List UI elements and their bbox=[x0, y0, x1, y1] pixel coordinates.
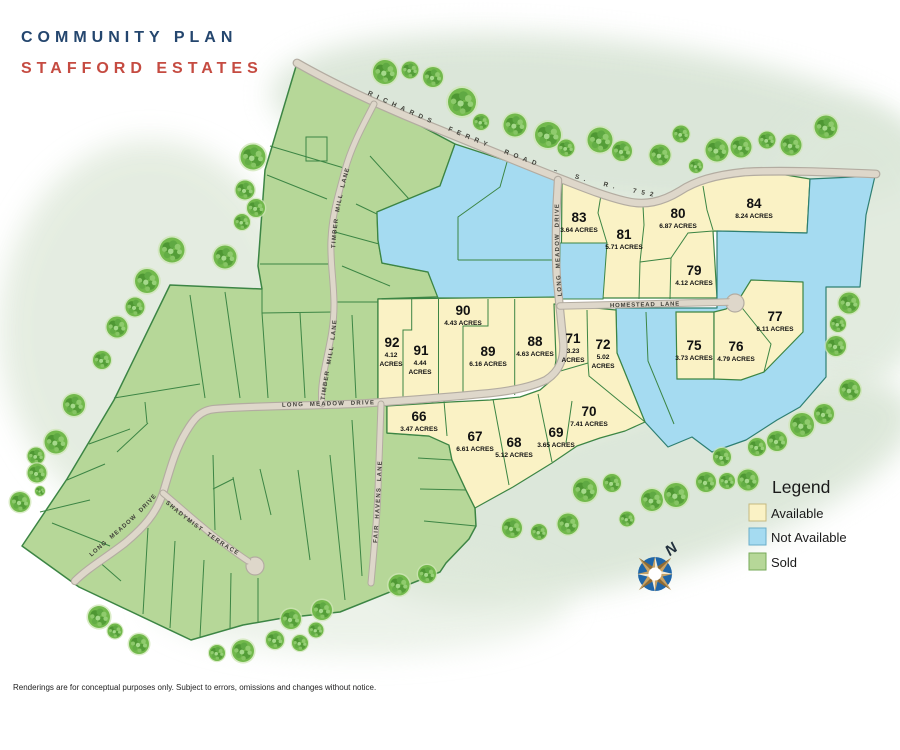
svg-text:77: 77 bbox=[767, 309, 782, 324]
svg-text:3.47 ACRES: 3.47 ACRES bbox=[400, 426, 438, 433]
svg-text:92: 92 bbox=[384, 335, 399, 350]
svg-text:71: 71 bbox=[565, 331, 581, 346]
svg-text:3.73 ACRES: 3.73 ACRES bbox=[675, 355, 713, 362]
svg-text:81: 81 bbox=[616, 227, 632, 242]
svg-text:84: 84 bbox=[746, 196, 762, 211]
svg-text:ACRES: ACRES bbox=[379, 361, 403, 368]
svg-text:75: 75 bbox=[686, 338, 702, 353]
svg-text:Sold: Sold bbox=[771, 555, 797, 570]
svg-text:79: 79 bbox=[686, 263, 701, 278]
svg-text:3.65 ACRES: 3.65 ACRES bbox=[537, 442, 575, 449]
svg-text:6.87 ACRES: 6.87 ACRES bbox=[659, 223, 697, 230]
svg-text:88: 88 bbox=[527, 334, 543, 349]
svg-text:72: 72 bbox=[595, 337, 610, 352]
svg-text:4.12 ACRES: 4.12 ACRES bbox=[675, 280, 713, 287]
svg-text:91: 91 bbox=[413, 343, 429, 358]
svg-text:3.64 ACRES: 3.64 ACRES bbox=[560, 227, 598, 234]
svg-text:6.16 ACRES: 6.16 ACRES bbox=[469, 361, 507, 368]
svg-text:4.44: 4.44 bbox=[414, 360, 427, 367]
svg-text:5.02: 5.02 bbox=[597, 354, 610, 361]
svg-text:5.12 ACRES: 5.12 ACRES bbox=[495, 452, 533, 459]
svg-text:90: 90 bbox=[455, 303, 470, 318]
svg-text:STAFFORD ESTATES: STAFFORD ESTATES bbox=[21, 60, 263, 77]
svg-text:66: 66 bbox=[411, 409, 427, 424]
svg-text:4.79 ACRES: 4.79 ACRES bbox=[717, 356, 755, 363]
svg-text:Renderings are for conceptual: Renderings are for conceptual purposes o… bbox=[13, 683, 376, 692]
svg-text:8.24 ACRES: 8.24 ACRES bbox=[735, 213, 773, 220]
svg-text:68: 68 bbox=[506, 435, 522, 450]
svg-text:4.12: 4.12 bbox=[385, 352, 398, 359]
svg-text:3.23: 3.23 bbox=[567, 348, 580, 355]
svg-text:5.71 ACRES: 5.71 ACRES bbox=[605, 244, 643, 251]
svg-text:ACRES: ACRES bbox=[591, 363, 615, 370]
svg-text:Legend: Legend bbox=[772, 477, 830, 497]
svg-text:70: 70 bbox=[581, 404, 596, 419]
svg-text:7.41 ACRES: 7.41 ACRES bbox=[570, 421, 608, 428]
svg-text:67: 67 bbox=[467, 429, 482, 444]
svg-text:ACRES: ACRES bbox=[561, 357, 585, 364]
svg-text:ACRES: ACRES bbox=[408, 369, 432, 376]
svg-text:6.61 ACRES: 6.61 ACRES bbox=[456, 446, 494, 453]
svg-text:COMMUNITY PLAN: COMMUNITY PLAN bbox=[21, 29, 237, 46]
svg-text:6.11 ACRES: 6.11 ACRES bbox=[756, 326, 794, 333]
svg-text:83: 83 bbox=[571, 210, 587, 225]
svg-text:4.63 ACRES: 4.63 ACRES bbox=[516, 351, 554, 358]
svg-text:76: 76 bbox=[728, 339, 744, 354]
svg-text:89: 89 bbox=[480, 344, 495, 359]
svg-text:69: 69 bbox=[548, 425, 563, 440]
svg-text:Available: Available bbox=[771, 506, 824, 521]
svg-text:Not Available: Not Available bbox=[771, 530, 847, 545]
svg-text:4.43 ACRES: 4.43 ACRES bbox=[444, 320, 482, 327]
svg-text:80: 80 bbox=[670, 206, 685, 221]
